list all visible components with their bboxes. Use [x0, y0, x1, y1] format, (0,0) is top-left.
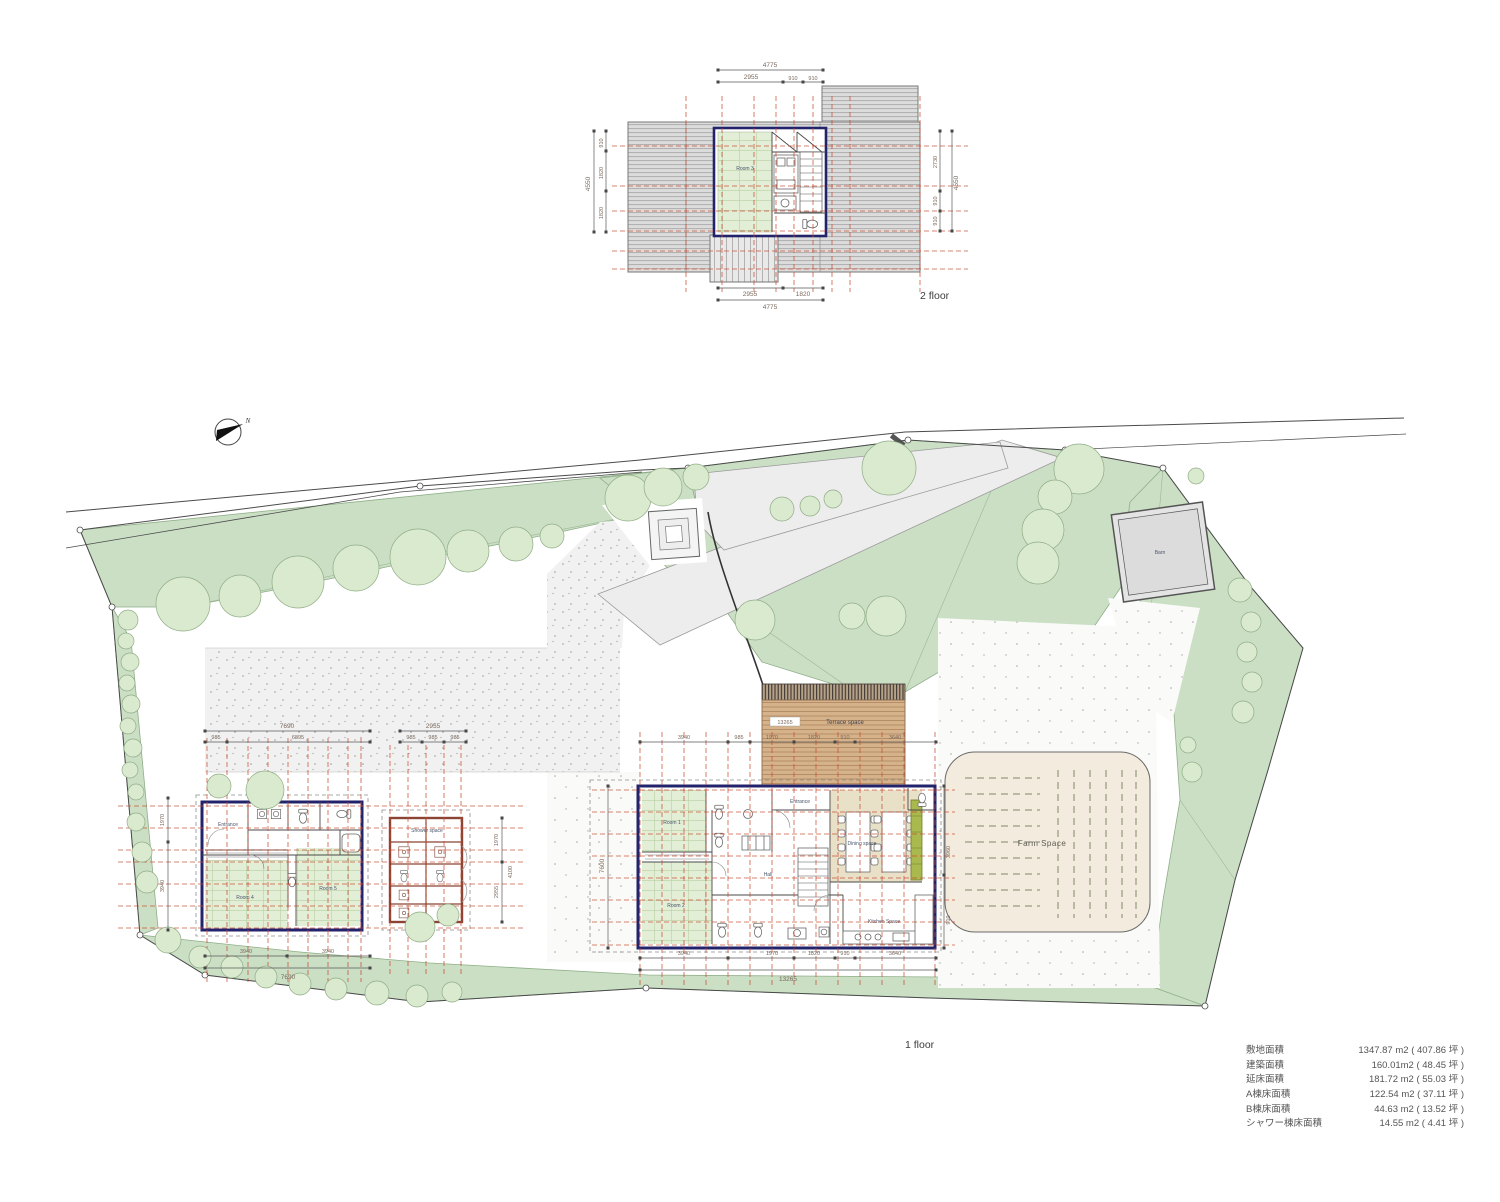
- table-row: B棟床面積 44.63 m2 ( 13.52 坪 ): [1246, 1100, 1464, 1115]
- dim-label: 2955: [744, 74, 759, 81]
- dim-label: 2730: [933, 156, 939, 168]
- dim-label: 4775: [763, 304, 778, 311]
- dim-label: 910: [840, 735, 849, 741]
- plan-drawing: 4775 2955 910 910 2955 1820 4775 910 182…: [0, 0, 1500, 1202]
- dim-label: 910: [808, 76, 817, 82]
- dim-label: 985: [406, 735, 415, 741]
- table-row-value: 44.63 m2 ( 13.52 坪 ): [1374, 1101, 1464, 1115]
- table-row: シャワー棟床面積 14.55 m2 ( 4.41 坪 ): [1246, 1115, 1464, 1130]
- table-row: 建築面積 160.01m2 ( 48.45 坪 ): [1246, 1057, 1464, 1072]
- room-label: Room 2: [667, 903, 685, 909]
- table-row-value: 122.54 m2 ( 37.11 坪 ): [1370, 1086, 1464, 1100]
- dim-label: 6895: [292, 735, 304, 741]
- dim-label: 1970: [160, 814, 166, 826]
- room-label: Entrance: [790, 799, 810, 805]
- floor2-caption: 2 floor: [920, 290, 950, 302]
- room4-tatami: [205, 860, 288, 928]
- dim-label: 3940: [322, 949, 334, 955]
- site-plan: Barn Farm Space Terrace space: [66, 417, 1406, 1051]
- dim-label: 4100: [508, 866, 514, 878]
- farm-space-label: Farm Space: [1018, 839, 1067, 848]
- dim-label: 1970: [766, 951, 778, 957]
- dim-label: 3940: [678, 735, 690, 741]
- dim-label: 13265: [777, 720, 792, 726]
- dim-label: 985: [428, 735, 437, 741]
- dim-label: 3960: [946, 846, 952, 858]
- table-row: A棟床面積 122.54 m2 ( 37.11 坪 ): [1246, 1086, 1464, 1101]
- dim-label: 1820: [796, 291, 811, 298]
- room-label: Entrance: [218, 822, 238, 828]
- dim-label: 3940: [240, 949, 252, 955]
- north-label: N: [245, 417, 251, 425]
- dim-label: 985: [450, 735, 459, 741]
- room-label: Room 1: [663, 820, 681, 826]
- dim-label: 985: [734, 735, 743, 741]
- dim-label: 2955: [494, 886, 500, 898]
- annex-building: Entrance Room 4 Room 5: [202, 802, 362, 930]
- farm-space: Farm Space: [945, 752, 1150, 932]
- pergola-strip: [762, 684, 905, 700]
- dim-label: 7600: [599, 858, 606, 873]
- dim-label: 3640: [889, 951, 901, 957]
- floor1-caption: 1 floor: [905, 1039, 935, 1051]
- dim-label: 13265: [779, 976, 797, 983]
- room-label: Dining space: [848, 841, 877, 847]
- table-row-value: 181.72 m2 ( 55.03 坪 ): [1369, 1071, 1464, 1085]
- dim-label: 7690: [281, 974, 296, 981]
- table-row-value: 1347.87 m2 ( 407.86 坪 ): [1358, 1042, 1464, 1056]
- dim-label: 4550: [585, 176, 592, 191]
- dim-label: 910: [933, 216, 939, 225]
- dim-label: 1820: [808, 951, 820, 957]
- dim-label: 1970: [494, 834, 500, 846]
- dim-label: 2955: [426, 723, 441, 730]
- dim-label: 1820: [599, 167, 605, 179]
- dim-label: 910: [946, 915, 952, 924]
- area-summary-table: 敷地面積 1347.87 m2 ( 407.86 坪 ) 建築面積 160.01…: [1246, 1042, 1464, 1130]
- table-row-label: 敷地面積: [1246, 1042, 1284, 1056]
- dim-label: 1820: [599, 207, 605, 219]
- table-row-label: B棟床面積: [1246, 1101, 1290, 1115]
- dim-label: 4550: [953, 175, 960, 190]
- terrace-label: Terrace space: [826, 720, 864, 726]
- dim-label: 985: [211, 735, 220, 741]
- dim-label: 910: [788, 76, 797, 82]
- dim-label: 1820: [808, 735, 820, 741]
- table-row-value: 160.01m2 ( 48.45 坪 ): [1372, 1057, 1464, 1071]
- dim-label: 910: [840, 951, 849, 957]
- dim-label: 910: [933, 196, 939, 205]
- floor-plan-sheet: 4775 2955 910 910 2955 1820 4775 910 182…: [0, 0, 1500, 1202]
- dim-label: 910: [599, 138, 605, 147]
- floor2-room-block: [714, 128, 826, 236]
- dim-label: 4775: [763, 62, 778, 69]
- barn-label: Barn: [1155, 550, 1166, 556]
- stairs-icon: [800, 152, 822, 212]
- stairs-icon: [798, 848, 828, 906]
- dim-label: 2955: [743, 291, 758, 298]
- floor2-balcony: [710, 235, 778, 282]
- floor2-plan: 4775 2955 910 910 2955 1820 4775 910 182…: [585, 62, 968, 311]
- dim-label: 3940: [160, 880, 166, 892]
- table-row-label: A棟床面積: [1246, 1086, 1290, 1100]
- table-row-value: 14.55 m2 ( 4.41 坪 ): [1380, 1115, 1464, 1129]
- dim-label: 7690: [280, 723, 295, 730]
- dim-label: 1970: [766, 735, 778, 741]
- dim-label: 3640: [889, 735, 901, 741]
- table-row: 延床面積 181.72 m2 ( 55.03 坪 ): [1246, 1071, 1464, 1086]
- table-row-label: シャワー棟床面積: [1246, 1115, 1322, 1129]
- terrace-deck: Terrace space: [762, 684, 905, 792]
- dim-label: 3940: [678, 951, 690, 957]
- table-row-label: 建築面積: [1246, 1057, 1284, 1071]
- north-arrow: N: [215, 417, 251, 445]
- room-label: Shower space: [411, 828, 443, 834]
- room-label: Hall: [764, 872, 773, 878]
- table-row-label: 延床面積: [1246, 1071, 1284, 1085]
- room-label: Room 4: [236, 895, 254, 901]
- table-row: 敷地面積 1347.87 m2 ( 407.86 坪 ): [1246, 1042, 1464, 1057]
- room-label: Room 3: [736, 166, 754, 172]
- main-building: Entrance Room 1 Room 2 Hall Dining space…: [638, 786, 935, 948]
